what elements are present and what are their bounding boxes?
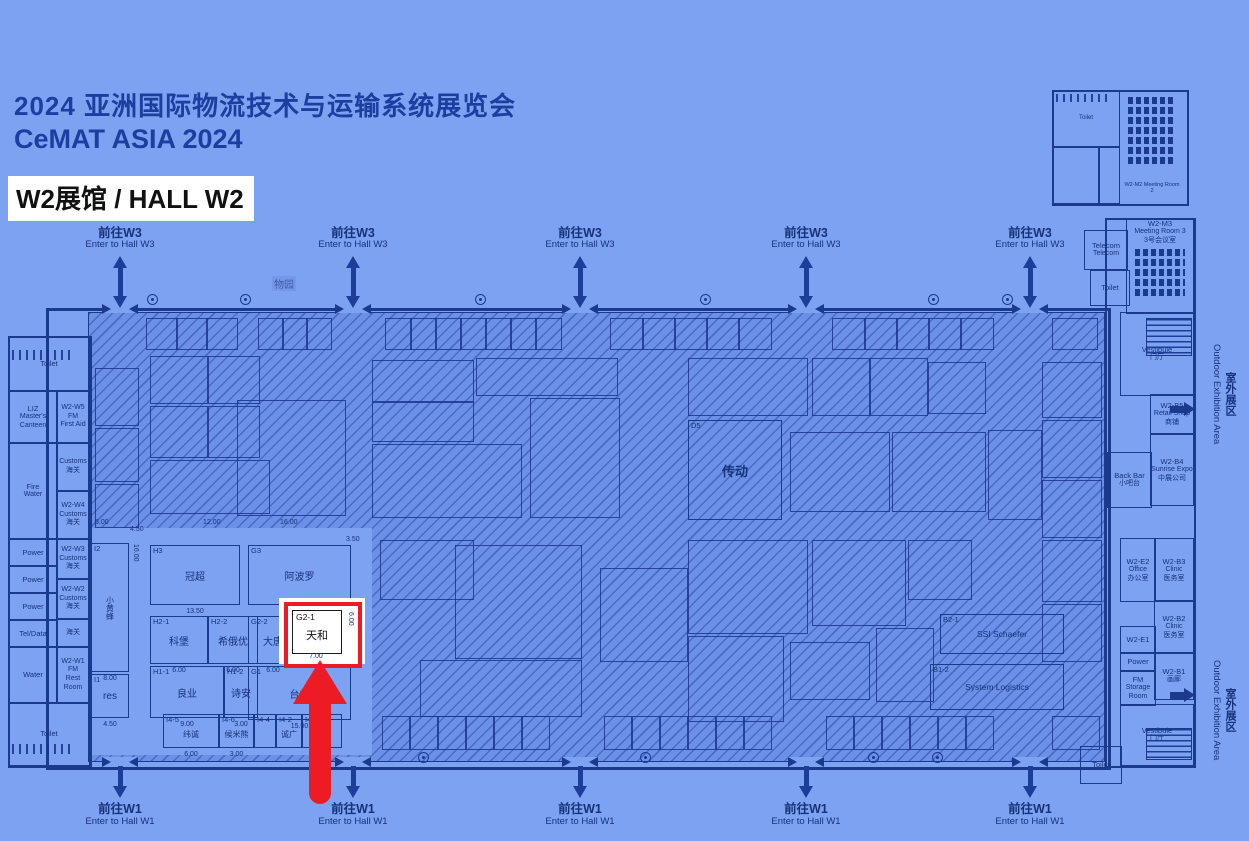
booth-D5: D5传动 [688, 420, 782, 520]
stairs-top-vestibule [1146, 318, 1192, 356]
arrow-part [1023, 256, 1037, 268]
door-leaf-icon [1012, 304, 1021, 314]
arrow-part [113, 256, 127, 268]
arrow-part [1170, 692, 1184, 699]
room-label: Rest Room [57, 675, 89, 693]
nav-bottom-cn-4: 前往W1 [970, 798, 1090, 817]
booth-unlabeled-38 [688, 358, 808, 416]
room-label: Office [1129, 566, 1147, 575]
booth-name: 科堡 [151, 617, 207, 663]
booth-unlabeled-55 [908, 540, 972, 600]
room-label: 3号会议室 [1144, 237, 1176, 246]
booth-name: 候米熊 [220, 715, 253, 747]
room-right-fm: FMStorage Room [1120, 670, 1156, 706]
arrow-part [799, 296, 813, 308]
arrow-part [346, 256, 360, 268]
arrow-part [573, 256, 587, 268]
booth-name: 纬诚 [164, 715, 218, 747]
booth-unlabeled-28 [208, 356, 260, 404]
booth-unlabeled-20 [896, 318, 930, 350]
nav-bottom-en-1: Enter to Hall W1 [288, 816, 418, 827]
arrow-part [346, 296, 360, 308]
arrow-part [351, 268, 356, 296]
booth-H3: H3冠超13.50 [150, 545, 240, 605]
column-marker [640, 752, 651, 763]
seat-row [1128, 117, 1176, 124]
mini-plan-room [1052, 146, 1100, 204]
door-gap [1012, 757, 1048, 766]
up-down-arrow-icon [1023, 256, 1037, 306]
booth-unlabeled-10 [485, 318, 512, 350]
booth-unlabeled-73 [854, 716, 882, 750]
dimension-mark: 12.00 [203, 519, 221, 526]
room-label: W2-B1 [1163, 667, 1186, 676]
booth-unlabeled-21 [928, 318, 962, 350]
right-arrow-icon-1 [1170, 688, 1196, 704]
room-label: FM [68, 413, 78, 422]
hall-name-label: W2展馆 / HALL W2 [8, 176, 254, 221]
mini-plan-meeting-label: W2-M2 Meeting Room 2 [1124, 182, 1180, 198]
room-label: 海关 [66, 629, 80, 638]
up-down-arrow-icon [573, 256, 587, 306]
booth-unlabeled-74 [882, 716, 910, 750]
booth-unlabeled-6 [385, 318, 412, 350]
arrow-part [1028, 766, 1033, 786]
down-arrow-icon [573, 766, 587, 798]
room-right-back-bar: Back Bar小吧台 [1107, 452, 1152, 508]
arrow-part [1184, 688, 1195, 702]
room-right-power: Power [1120, 652, 1156, 672]
booth-unlabeled-15 [674, 318, 708, 350]
room-label: W2-B2 [1163, 614, 1186, 623]
booth-name: System Logistics [931, 665, 1063, 709]
seat-row [1135, 279, 1185, 286]
room-label: 画廊 [1167, 676, 1181, 685]
booth-unlabeled-69 [688, 716, 716, 750]
room-left-power: Power [8, 592, 58, 621]
nav-bottom-en-4: Enter to Hall W1 [965, 816, 1095, 827]
booth-unlabeled-11 [510, 318, 537, 350]
nav-top-en-2: Enter to Hall W3 [515, 239, 645, 250]
room-label: First Aid [60, 421, 85, 430]
room-right-toilet: Toilet [1080, 746, 1122, 784]
room-left-water: Water [8, 646, 58, 704]
booth-unlabeled-0 [146, 318, 178, 350]
room-label: Fire [27, 482, 40, 491]
door-gap [788, 757, 824, 766]
door-leaf-icon [102, 757, 111, 767]
booth-unlabeled-23 [1052, 318, 1098, 350]
booth-unlabeled-70 [716, 716, 744, 750]
seat-row [1135, 259, 1185, 266]
room-label: W2-W1 [61, 658, 84, 667]
room-label: Power [22, 602, 43, 611]
room-left-service-1: Customs海关 [56, 442, 90, 492]
booth-unlabeled-46 [1042, 420, 1102, 478]
booth-unlabeled-41 [928, 362, 986, 414]
booth-G3: G3阿波罗14.50 [248, 545, 351, 605]
booth-unlabeled-62 [438, 716, 466, 750]
arrow-part [799, 786, 813, 798]
booth-I1: I1res4.50 [91, 674, 129, 718]
room-right-w2-e1: W2-E1 [1120, 626, 1156, 654]
booth-unlabeled-1 [176, 318, 208, 350]
expo-title-english: CeMAT ASIA 2024 [14, 124, 243, 155]
booth-unlabeled-72 [826, 716, 854, 750]
booth-dimension: 13.50 [151, 608, 239, 615]
booth-unlabeled-43 [892, 432, 986, 512]
booth-unlabeled-77 [966, 716, 994, 750]
room-label: FM [1133, 675, 1144, 684]
booth-unlabeled-48 [1042, 540, 1102, 602]
outdoor-area-label-1: 室外展区Outdoor Exhibition Area [1198, 646, 1238, 774]
booth-unlabeled-19 [864, 318, 898, 350]
room-label: 小吧台 [1119, 480, 1140, 489]
column-marker [928, 294, 939, 305]
nav-bottom-cn-1: 前往W1 [293, 798, 413, 817]
door-leaf-icon [362, 304, 371, 314]
booth-name: 小黄蜂 [92, 544, 128, 671]
up-down-arrow-icon [113, 256, 127, 306]
column-marker [868, 752, 879, 763]
booth-name: 冠超 [151, 546, 239, 604]
dimension-mark: 16.00 [280, 519, 298, 526]
room-left-service-4: W2-W2Customs海关 [56, 578, 90, 620]
booth-unlabeled-65 [522, 716, 550, 750]
column-marker [147, 294, 158, 305]
room-label: W2-B3 [1163, 557, 1186, 566]
booth-name: SSI Schaefer [941, 615, 1063, 653]
booth-I2: I2小黄蜂8.0016.00 [91, 543, 129, 672]
arrow-part [1170, 406, 1184, 413]
booth-name: 诚广 [277, 715, 301, 747]
booth-unlabeled-22 [960, 318, 994, 350]
nav-bottom-cn-3: 前往W1 [746, 798, 866, 817]
seat-row [1135, 249, 1185, 256]
door-leaf-icon [562, 757, 571, 767]
room-label: Power [22, 548, 43, 557]
room-label: 医务室 [1164, 632, 1185, 641]
column-marker [475, 294, 486, 305]
booth-unlabeled-75 [910, 716, 938, 750]
room-left-liz: LIZMaster's Canteen [8, 390, 58, 444]
room-label: W2-W3 [61, 546, 84, 555]
toilet-stalls-top [12, 350, 72, 360]
arrow-part [346, 786, 360, 798]
nav-bottom-en-0: Enter to Hall W1 [55, 816, 185, 827]
seat-row [1128, 157, 1176, 164]
door-leaf-icon [335, 757, 344, 767]
room-left-service-5: 海关 [56, 618, 90, 648]
booth-name: 阿波罗 [249, 546, 350, 604]
room-label: Clinic [1165, 566, 1182, 575]
locator-arrow-shaft [309, 702, 331, 804]
nav-top-en-0: Enter to Hall W3 [55, 239, 185, 250]
booth-unlabeled-4 [282, 318, 308, 350]
arrow-part [1023, 296, 1037, 308]
booth-name: 良业 [151, 667, 223, 717]
column-marker [932, 752, 943, 763]
dimension-mark: 4.50 [130, 526, 144, 533]
down-arrow-icon [799, 766, 813, 798]
door-leaf-icon [129, 757, 138, 767]
arrow-part [118, 766, 123, 786]
booth-unlabeled-16 [706, 318, 740, 350]
arrow-part [113, 786, 127, 798]
garden-label: 物园 [272, 276, 296, 291]
booth-unlabeled-40 [870, 358, 928, 416]
door-leaf-icon [129, 304, 138, 314]
booth-unlabeled-54 [812, 540, 906, 626]
room-label: 海关 [66, 467, 80, 476]
seat-row [1128, 127, 1176, 134]
booth-unlabeled-60 [382, 716, 410, 750]
arrow-part [1023, 786, 1037, 798]
door-leaf-icon [102, 304, 111, 314]
arrow-part [1028, 268, 1033, 296]
room-label: Toilet [40, 359, 58, 368]
room-right-telecom: TelecomTelecom [1084, 230, 1128, 270]
door-leaf-icon [815, 757, 824, 767]
outdoor-label-cn: 室外展区 [1222, 330, 1238, 458]
booth-dimension: 6.00 [164, 751, 218, 758]
arrow-part [351, 766, 356, 786]
booth-unlabeled-63 [466, 716, 494, 750]
arrow-part [799, 256, 813, 268]
room-label: Telecom [1092, 241, 1120, 250]
booth-I4-5: I4-5纬诚6.00 [163, 714, 219, 748]
arrow-part [573, 786, 587, 798]
column-marker [240, 294, 251, 305]
room-left-toilet: Toilet [8, 702, 90, 766]
booth-unlabeled-25 [95, 428, 139, 482]
room-right-toilet: Toilet [1090, 270, 1130, 306]
nav-top-en-4: Enter to Hall W3 [965, 239, 1095, 250]
booth-dimension-side: 16.00 [132, 544, 139, 671]
seat-row [1128, 147, 1176, 154]
door-leaf-icon [589, 304, 598, 314]
booth-unlabeled-35 [372, 444, 522, 518]
room-label: Toilet [1092, 760, 1110, 769]
door-leaf-icon [1012, 757, 1021, 767]
room-left-service-2: W2-W4Customs海关 [56, 490, 90, 540]
room-label: 中展公司 [1158, 475, 1186, 484]
room-label: Toilet [1101, 283, 1119, 292]
room-left-fire: FireWater [8, 442, 58, 540]
booth-unlabeled-32 [237, 400, 346, 516]
nav-bottom-cn-0: 前往W1 [60, 798, 180, 817]
room-label: Customs [59, 458, 87, 467]
booth-H2-1: H2-1科堡6.00 [150, 616, 208, 664]
room-left-tel-data: Tel/Data [8, 619, 58, 648]
booth-unlabeled-68 [660, 716, 688, 750]
arrow-part [804, 268, 809, 296]
room-label: W2-E2 [1127, 557, 1150, 566]
seat-row [1135, 269, 1185, 276]
door-leaf-icon [589, 757, 598, 767]
mini-plan-stalls [1056, 94, 1112, 102]
room-label: 海关 [66, 603, 80, 612]
booth-unlabeled-39 [812, 358, 870, 416]
room-label: FM [68, 666, 78, 675]
booth-I4-4: I4-4 [254, 714, 276, 748]
room-label: Tel/Data [19, 629, 47, 638]
door-leaf-icon [1039, 757, 1048, 767]
booth-unlabeled-7 [410, 318, 437, 350]
room-left-power: Power [8, 565, 58, 594]
seat-row [1128, 107, 1176, 114]
booth-unlabeled-33 [372, 360, 474, 402]
nav-top-en-1: Enter to Hall W3 [288, 239, 418, 250]
booth-unlabeled-18 [832, 318, 866, 350]
booth-B1-2: B1-2System Logistics [930, 664, 1064, 710]
room-left-service-3: W2-W3Customs海关 [56, 538, 90, 580]
door-leaf-icon [815, 304, 824, 314]
booth-unlabeled-66 [604, 716, 632, 750]
booth-unlabeled-47 [1042, 480, 1102, 538]
nav-top-en-3: Enter to Hall W3 [741, 239, 871, 250]
arrow-part [573, 296, 587, 308]
booth-unlabeled-78 [1052, 716, 1100, 750]
room-label: W2-W5 [61, 404, 84, 413]
arrow-part [118, 268, 123, 296]
down-arrow-icon [346, 766, 360, 798]
booth-unlabeled-53 [688, 540, 808, 634]
door-gap [102, 757, 138, 766]
booth-unlabeled-59 [876, 628, 934, 702]
booth-unlabeled-34 [372, 402, 474, 442]
room-label: Back Bar [1114, 471, 1144, 480]
room-label: 海关 [66, 519, 80, 528]
booth-unlabeled-12 [535, 318, 562, 350]
highlight-booth-name: 天和 [293, 611, 341, 653]
door-leaf-icon [562, 304, 571, 314]
booth-unlabeled-14 [642, 318, 676, 350]
room-label: Storage Room [1121, 684, 1155, 702]
column-marker [700, 294, 711, 305]
booth-unlabeled-8 [435, 318, 462, 350]
outdoor-area-label-0: 室外展区Outdoor Exhibition Area [1198, 330, 1238, 458]
door-gap [335, 757, 371, 766]
highlight-dimension-side: 6.00 [344, 612, 354, 648]
room-label: Power [22, 575, 43, 584]
booth-unlabeled-9 [460, 318, 487, 350]
arrow-part [1184, 402, 1195, 416]
room-label: 海关 [66, 563, 80, 572]
booth-unlabeled-3 [258, 318, 284, 350]
room-label: Master's Canteen [9, 413, 57, 431]
dimension-mark: 3.50 [346, 536, 360, 543]
up-down-arrow-icon [799, 256, 813, 306]
arrow-part [113, 296, 127, 308]
room-label: Toilet [40, 729, 58, 738]
booth-unlabeled-64 [494, 716, 522, 750]
expo-title-chinese: 2024 亚洲国际物流技术与运输系统展览会 [14, 86, 516, 123]
room-label: Sunrise Expo [1151, 466, 1193, 475]
room-right-w2-b2: W2-B2Clinic医务室 [1154, 600, 1194, 654]
door-leaf-icon [335, 304, 344, 314]
column-marker [418, 752, 429, 763]
room-label: 商铺 [1165, 419, 1179, 428]
room-label: 办公室 [1128, 575, 1149, 584]
door-leaf-icon [788, 304, 797, 314]
seat-row [1128, 137, 1176, 144]
booth-unlabeled-51 [455, 545, 582, 659]
booth-I4-6: I4-6候米熊3.00 [219, 714, 254, 748]
dimension-mark: 5.00 [95, 519, 109, 526]
room-label: Water [23, 670, 43, 679]
room-label: W2-E1 [1127, 635, 1150, 644]
up-down-arrow-icon [346, 256, 360, 306]
booth-I4-2: I4-2诚广 [276, 714, 302, 748]
booth-unlabeled-76 [938, 716, 966, 750]
floor-plan-screenshot: 2024 亚洲国际物流技术与运输系统展览会 CeMAT ASIA 2024 W2… [0, 0, 1249, 841]
booth-H1-1: H1-1良业9.00 [150, 666, 224, 718]
toilet-stalls-bottom [12, 744, 72, 754]
booth-id: I4-4 [257, 715, 270, 724]
room-label: Clinic [1165, 623, 1182, 632]
room-right-w2-m3: W2-M3Meeting Room 33号会议室 [1126, 218, 1194, 314]
room-right-w2-b3: W2-B3Clinic医务室 [1154, 538, 1194, 602]
room-label: Meeting Room 3 [1134, 228, 1185, 237]
arrow-part [578, 766, 583, 786]
booth-unlabeled-71 [744, 716, 772, 750]
arrow-part [578, 268, 583, 296]
room-label: Telecom [1093, 250, 1119, 259]
room-left-power: Power [8, 538, 58, 567]
room-left-service-0: W2-W5FMFirst Aid [56, 390, 90, 444]
nav-bottom-en-2: Enter to Hall W1 [515, 816, 645, 827]
booth-unlabeled-57 [688, 636, 784, 722]
door-gap [562, 757, 598, 766]
door-leaf-icon [362, 757, 371, 767]
room-label: W2-M3 [1148, 219, 1172, 228]
mini-plan-room-2 [1098, 146, 1120, 204]
booth-unlabeled-27 [150, 356, 208, 404]
booth-unlabeled-52 [600, 568, 688, 662]
booth-unlabeled-5 [306, 318, 332, 350]
room-label: Power [1127, 657, 1148, 666]
highlight-booth: G2-1天和 [292, 610, 342, 654]
booth-unlabeled-17 [738, 318, 772, 350]
booth-unlabeled-24 [95, 368, 139, 426]
room-label: Water [24, 491, 42, 500]
booth-unlabeled-44 [988, 430, 1042, 520]
down-arrow-icon [113, 766, 127, 798]
booth-unlabeled-58 [790, 642, 870, 700]
door-leaf-icon [1039, 304, 1048, 314]
room-label: LIZ [28, 404, 39, 413]
room-right-w2-e2: W2-E2Office办公室 [1120, 538, 1156, 602]
stairs-bottom-vestibule [1146, 728, 1192, 760]
seat-row [1128, 97, 1176, 104]
booth-unlabeled-13 [610, 318, 644, 350]
booth-unlabeled-29 [150, 406, 208, 458]
room-label: W2-W4 [61, 502, 84, 511]
outdoor-label-en: Outdoor Exhibition Area [1211, 646, 1222, 774]
nav-bottom-en-3: Enter to Hall W1 [741, 816, 871, 827]
down-arrow-icon [1023, 766, 1037, 798]
outdoor-label-en: Outdoor Exhibition Area [1211, 330, 1222, 458]
booth-unlabeled-56 [420, 660, 582, 717]
outdoor-label-cn: 室外展区 [1222, 646, 1238, 774]
locator-arrow-head [293, 660, 347, 704]
room-right-w2-b4: W2-B4Sunrise Expo中展公司 [1150, 434, 1194, 506]
room-label: 医务室 [1164, 575, 1185, 584]
room-label: W2-W2 [61, 586, 84, 595]
room-label: W2-B4 [1161, 457, 1184, 466]
door-leaf-icon [788, 757, 797, 767]
